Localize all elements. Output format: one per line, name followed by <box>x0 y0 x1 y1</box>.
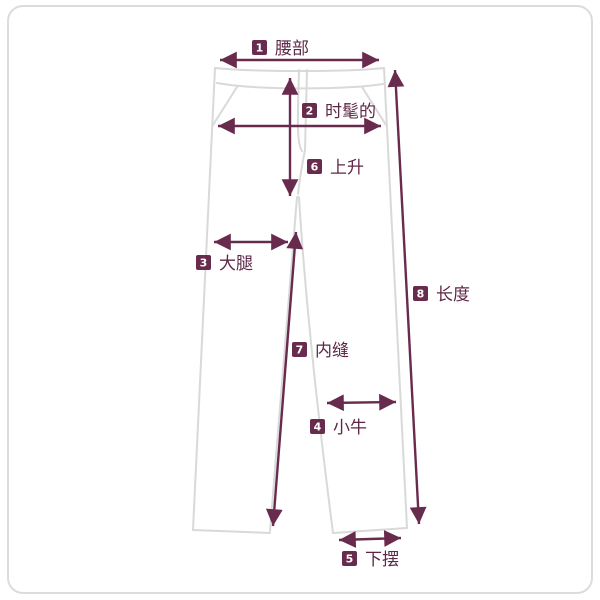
label-thigh-text: 大腿 <box>219 254 253 274</box>
badge-hip-number: 2 <box>306 105 314 118</box>
badge-thigh-number: 3 <box>200 257 208 270</box>
label-rise-text: 上升 <box>330 158 364 178</box>
measure-hem-line <box>339 538 401 540</box>
label-rise: 6 上升 <box>307 158 364 178</box>
right-hem-edge <box>333 528 407 533</box>
waistband-bottom-edge <box>217 83 383 88</box>
measure-calf-line <box>327 402 396 403</box>
left-leg-inseam-edge <box>270 197 297 531</box>
fly-left-line <box>298 70 302 151</box>
size-chart-diagram: 1 腰部 2 时髦的 6 上升 3 大腿 7 内缝 <box>0 0 600 600</box>
right-outseam <box>384 68 407 528</box>
badge-rise-number: 6 <box>311 161 319 174</box>
label-hem: 5 下摆 <box>342 550 399 570</box>
label-length: 8 长度 <box>413 285 470 305</box>
badge-calf-number: 4 <box>314 421 322 434</box>
labels: 1 腰部 2 时髦的 6 上升 3 大腿 7 内缝 <box>196 39 470 570</box>
front-crotch-seam <box>298 150 305 194</box>
label-hip: 2 时髦的 <box>302 101 376 122</box>
pants-outline <box>193 68 407 533</box>
left-outseam <box>193 68 215 530</box>
badge-inseam-number: 7 <box>296 344 304 357</box>
badge-length-number: 8 <box>417 288 425 301</box>
measurement-lines <box>214 60 419 540</box>
label-inseam: 7 内缝 <box>292 341 349 361</box>
left-hem-edge <box>193 530 270 533</box>
label-length-text: 长度 <box>436 285 470 305</box>
label-hem-text: 下摆 <box>365 550 399 570</box>
pocket-left-line <box>213 87 237 125</box>
label-hip-text: 时髦的 <box>325 101 376 122</box>
label-inseam-text: 内缝 <box>315 341 349 361</box>
badge-hem-number: 5 <box>346 553 354 566</box>
pants-diagram-svg: 1 腰部 2 时髦的 6 上升 3 大腿 7 内缝 <box>0 0 600 600</box>
measure-inseam-line <box>273 232 296 526</box>
badge-waist-number: 1 <box>256 42 264 55</box>
right-leg-inseam-edge <box>299 197 333 533</box>
label-waist: 1 腰部 <box>252 39 309 59</box>
label-calf-text: 小牛 <box>333 418 367 438</box>
label-calf: 4 小牛 <box>310 418 367 438</box>
label-waist-text: 腰部 <box>275 39 309 59</box>
